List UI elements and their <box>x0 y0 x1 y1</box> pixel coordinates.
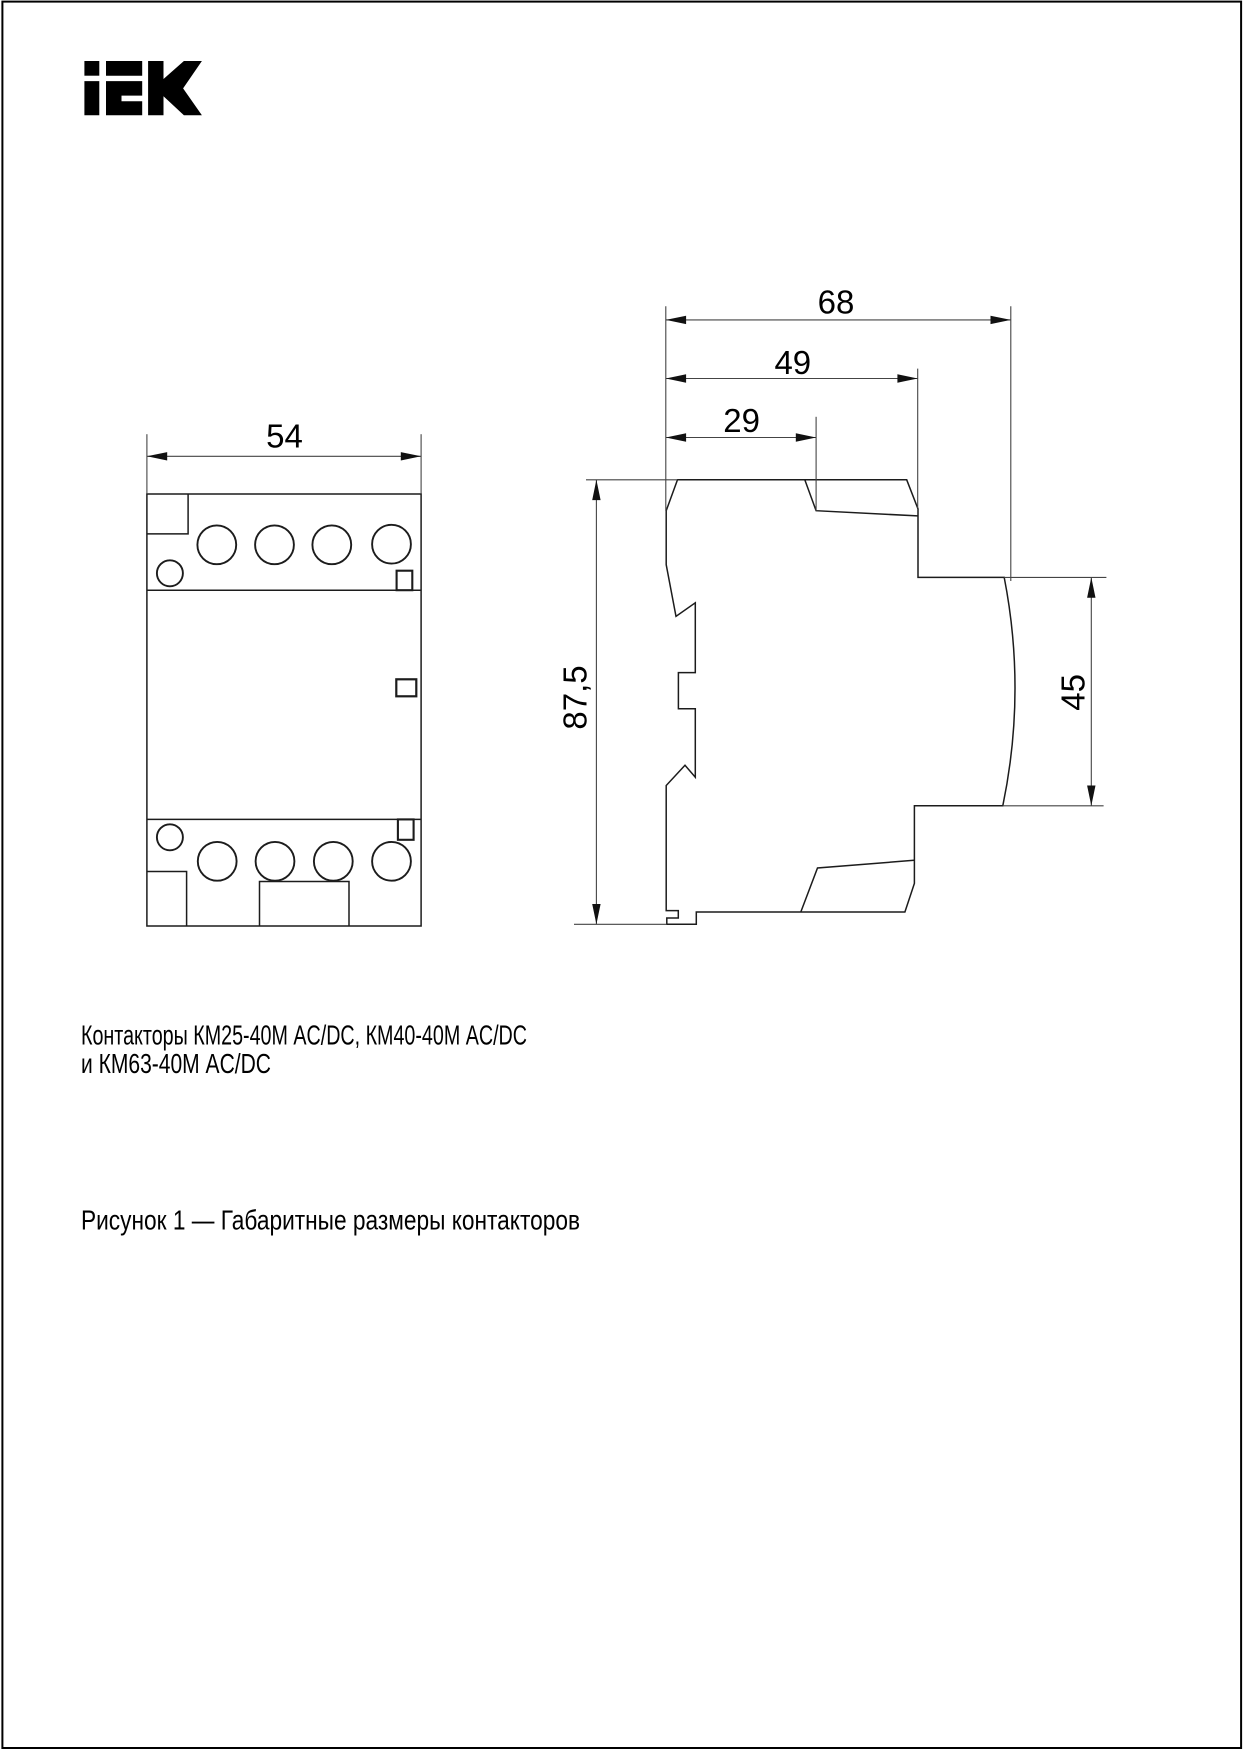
svg-text:87,5: 87,5 <box>557 665 594 729</box>
svg-text:29: 29 <box>723 402 760 439</box>
svg-text:54: 54 <box>266 417 303 454</box>
svg-text:Рисунок 1 — Габаритные размеры: Рисунок 1 — Габаритные размеры контактор… <box>81 1205 580 1236</box>
svg-text:68: 68 <box>818 284 855 321</box>
svg-text:и КМ63-40М AC/DC: и КМ63-40М AC/DC <box>81 1048 271 1079</box>
svg-text:49: 49 <box>774 344 811 381</box>
svg-text:45: 45 <box>1055 674 1092 711</box>
svg-text:Контакторы КМ25-40М AC/DC, КМ4: Контакторы КМ25-40М AC/DC, КМ40-40М AC/D… <box>81 1020 527 1051</box>
